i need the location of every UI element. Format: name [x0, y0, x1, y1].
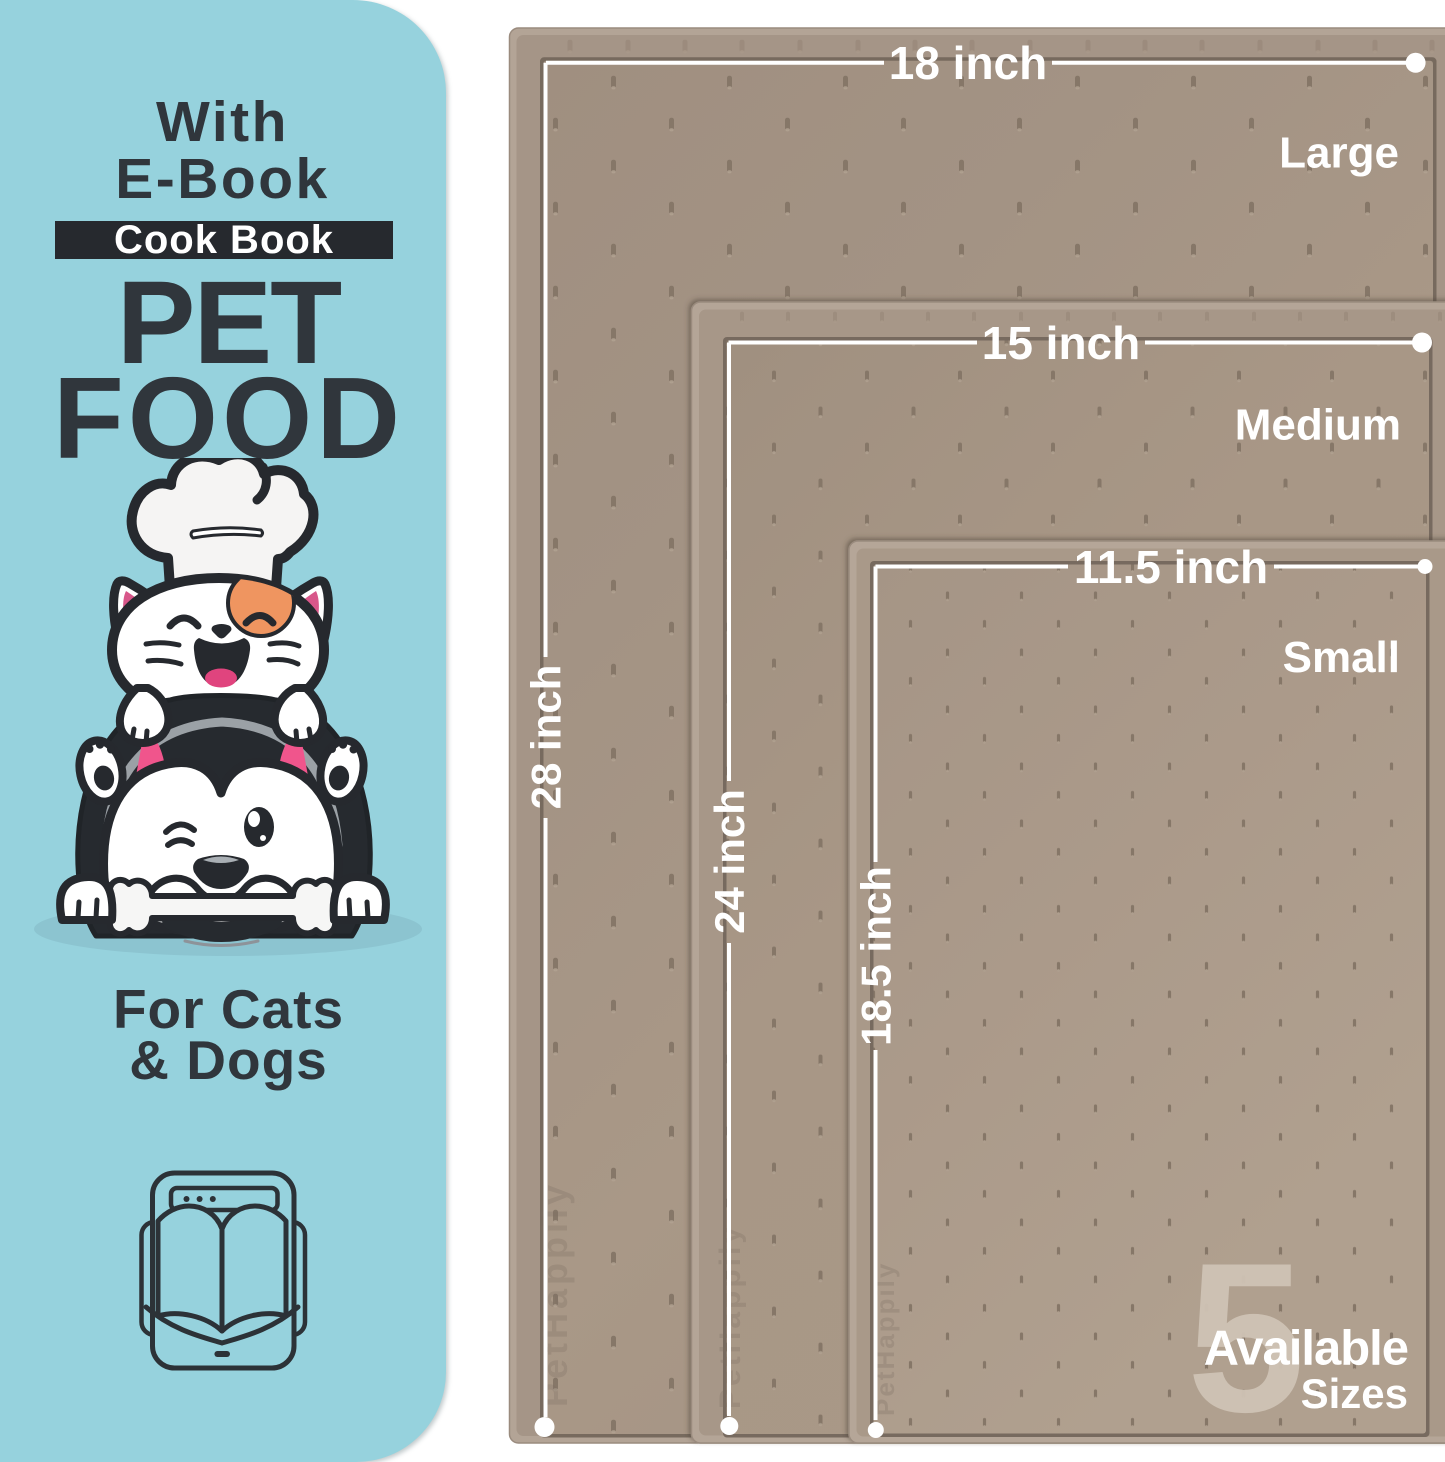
svg-text:Small: Small	[1283, 633, 1400, 682]
svg-text:Available: Available	[1204, 1322, 1408, 1376]
svg-text:Large: Large	[1279, 129, 1399, 178]
svg-text:28 inch: 28 inch	[523, 665, 570, 810]
svg-text:Medium: Medium	[1235, 401, 1401, 450]
svg-text:Sizes: Sizes	[1301, 1370, 1408, 1417]
svg-text:11.5 inch: 11.5 inch	[1074, 541, 1268, 593]
svg-text:18.5 inch: 18.5 inch	[853, 866, 900, 1046]
svg-text:PetHappily: PetHappily	[534, 1181, 575, 1407]
svg-text:18 inch: 18 inch	[889, 37, 1048, 89]
svg-text:24 inch: 24 inch	[706, 789, 753, 934]
svg-text:15 inch: 15 inch	[982, 317, 1141, 369]
